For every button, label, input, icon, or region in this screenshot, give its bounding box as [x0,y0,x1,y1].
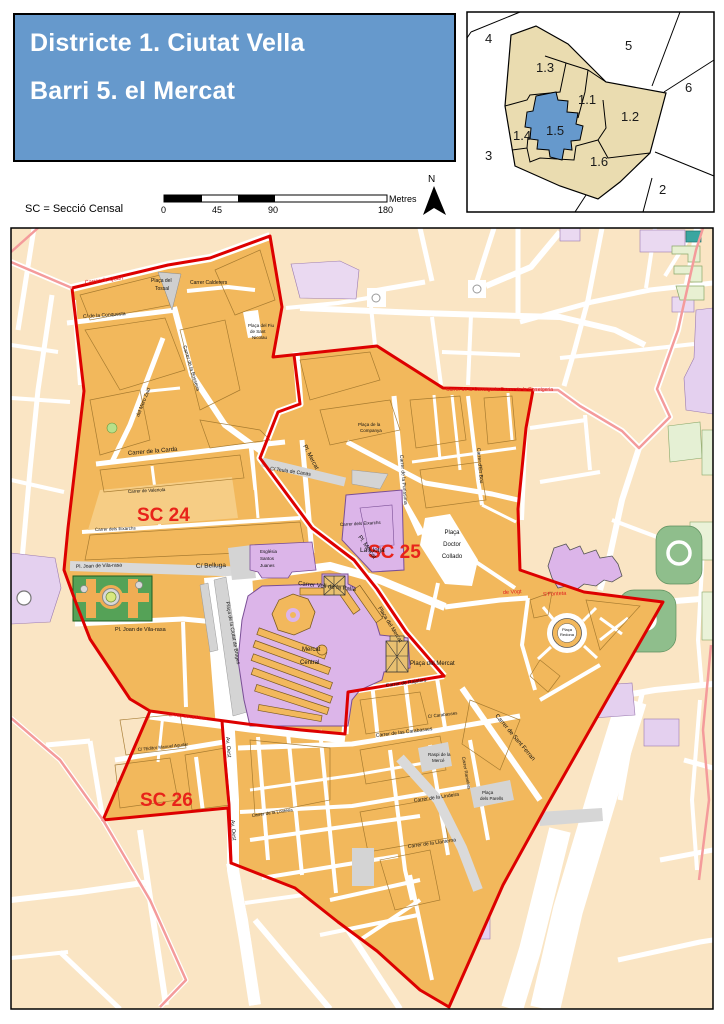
svg-text:1.3: 1.3 [536,60,554,75]
svg-text:Raspi de la: Raspi de la [428,752,451,757]
svg-text:90: 90 [268,205,278,215]
svg-text:Plaça de la: Plaça de la [358,422,381,427]
svg-text:Església: Església [260,549,278,554]
svg-text:5: 5 [625,38,632,53]
svg-text:1.1: 1.1 [578,92,596,107]
svg-text:C/ Belluga: C/ Belluga [196,562,227,570]
svg-text:1.2: 1.2 [621,109,639,124]
svg-text:Mercé: Mercé [432,758,445,763]
svg-text:de Vogt: de Vogt [503,589,522,596]
svg-text:Juanes: Juanes [260,563,275,568]
svg-text:1.4: 1.4 [513,128,531,143]
svg-text:Plaça del Mercat: Plaça del Mercat [410,661,455,667]
svg-text:Central: Central [300,660,319,666]
svg-text:La Llotja: La Llotja [360,547,385,554]
svg-text:Nicolau: Nicolau [252,335,268,340]
svg-text:180: 180 [378,205,393,215]
svg-text:6: 6 [685,80,692,95]
svg-text:Plaça del: Plaça del [151,278,172,284]
svg-text:Collado: Collado [442,554,463,560]
svg-text:Pl. Joan de Vila-rasa: Pl. Joan de Vila-rasa [115,627,167,633]
svg-text:Redona: Redona [560,632,575,637]
svg-text:Plaça del Fiu: Plaça del Fiu [248,323,275,328]
svg-text:3: 3 [485,148,492,163]
svg-text:Tossal: Tossal [155,286,169,292]
svg-text:de Sant: de Sant [250,329,266,334]
svg-text:2: 2 [659,182,666,197]
svg-text:Carrer de la Corretgeria Carr: Carrer de la Corretgeria Carrer de la Co… [446,387,553,393]
svg-text:SC 24: SC 24 [137,505,190,526]
svg-text:45: 45 [212,205,222,215]
svg-text:4: 4 [485,31,492,46]
svg-text:Districte 1. Ciutat Vella: Districte 1. Ciutat Vella [30,29,305,57]
svg-text:dels Parells: dels Parells [480,796,504,801]
svg-text:N: N [428,174,435,185]
svg-text:S'Fonteta: S'Fonteta [543,591,568,598]
svg-text:Mercat: Mercat [302,647,321,653]
svg-text:SC = Secció Censal: SC = Secció Censal [25,203,123,215]
svg-text:Barri 5. el Mercat: Barri 5. el Mercat [30,77,236,105]
svg-text:Plaça: Plaça [482,790,494,795]
svg-text:1.6: 1.6 [590,154,608,169]
svg-text:Metres: Metres [389,194,417,204]
svg-text:Plaça: Plaça [444,530,460,536]
svg-text:Companya: Companya [360,428,382,433]
svg-text:Santos: Santos [260,556,275,561]
svg-text:Carrer Calderers: Carrer Calderers [190,280,228,286]
svg-text:Doctor: Doctor [443,542,461,548]
svg-text:SC 26: SC 26 [140,790,193,811]
svg-text:0: 0 [161,205,166,215]
svg-text:1.5: 1.5 [546,123,564,138]
